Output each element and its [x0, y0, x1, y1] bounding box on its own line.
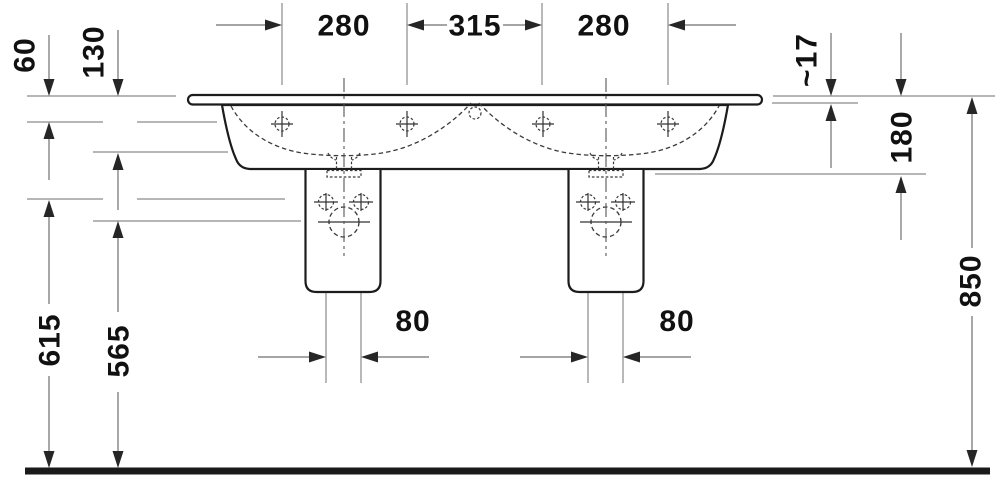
arrowhead-down: [113, 451, 124, 468]
technical-drawing-canvas: 280 315 280 60 130 615 565: [0, 0, 1000, 478]
washbasin-body: [222, 105, 728, 169]
dim-label-top-280-right: 280: [577, 10, 630, 43]
dim-label-top-315: 315: [448, 10, 501, 43]
dimension-615: 615: [34, 200, 67, 468]
siphon-cover-left: [306, 170, 381, 292]
arrowhead-down: [113, 79, 124, 96]
dim-label-60: 60: [9, 37, 42, 72]
arrowhead-down: [967, 450, 978, 467]
dim-label-130: 130: [78, 25, 111, 78]
arrowhead-down: [896, 79, 907, 96]
dimension-17: ~17: [791, 33, 837, 168]
arrowhead-right: [525, 20, 542, 31]
arrowhead-up: [896, 176, 907, 193]
arrowhead-up: [113, 221, 124, 238]
washbasin-dimension-drawing: 280 315 280 60 130 615 565: [0, 0, 1000, 478]
arrowhead-left: [668, 20, 685, 31]
dim-label-180: 180: [886, 110, 919, 163]
dim-label-17: ~17: [791, 33, 824, 87]
arrowhead-up: [826, 104, 837, 121]
dim-label-850: 850: [955, 254, 988, 307]
dimension-top-315: 315: [407, 10, 542, 43]
arrowhead-up: [44, 122, 55, 139]
dim-label-80-right: 80: [659, 305, 694, 338]
arrowhead-down: [44, 451, 55, 468]
arrowhead-down: [44, 79, 55, 96]
dimension-130: 130: [78, 25, 124, 210]
arrowhead-up: [44, 200, 55, 217]
dimension-60: 60: [9, 35, 55, 180]
dim-label-615: 615: [34, 313, 67, 366]
dimension-top-280-right: 280: [577, 10, 736, 43]
dim-label-565: 565: [103, 324, 136, 377]
dimension-top-280-left: 280: [216, 10, 371, 43]
dimension-80-right: 80: [520, 305, 695, 363]
arrowhead-up: [967, 97, 978, 114]
arrowhead-left: [623, 352, 640, 363]
arrowhead-right: [309, 352, 326, 363]
dim-label-top-280-left: 280: [317, 10, 370, 43]
extension-lines: [27, 3, 995, 383]
arrowhead-up: [113, 153, 124, 170]
dimension-80-left: 80: [258, 305, 431, 363]
dimension-850: 850: [955, 97, 988, 467]
dimension-180: 180: [886, 33, 919, 240]
arrowhead-left: [407, 20, 424, 31]
arrowhead-down: [826, 79, 837, 96]
arrowhead-right: [571, 352, 588, 363]
washbasin-rim: [188, 95, 762, 105]
arrowhead-left: [361, 352, 378, 363]
dim-label-80-left: 80: [395, 305, 430, 338]
dimension-565: 565: [103, 221, 136, 468]
arrowhead-right: [265, 20, 282, 31]
